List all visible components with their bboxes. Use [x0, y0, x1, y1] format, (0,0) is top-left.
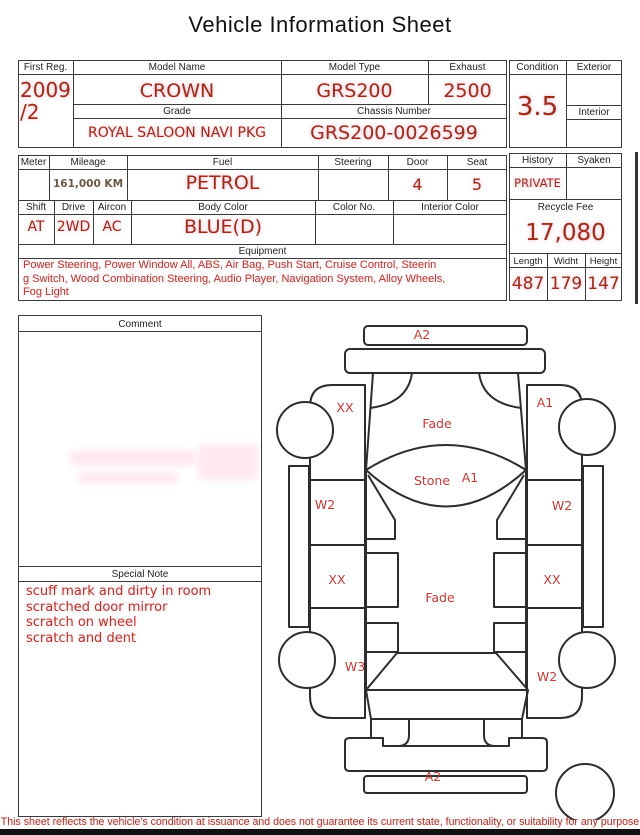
door-value: 4 [388, 175, 447, 194]
first-reg-month: /2 [20, 100, 39, 124]
special-note-line: scuff mark and dirty in room [26, 584, 211, 600]
equipment-line: Fog Light [23, 286, 503, 300]
rear-left-wheel [279, 632, 335, 688]
page-title: Vehicle Information Sheet [0, 12, 640, 38]
right-rear-window-tab [494, 623, 526, 652]
grid-line [18, 581, 262, 582]
interior-label: Interior [566, 106, 622, 119]
vehicle-information-sheet: Vehicle Information Sheet First Reg. Mod… [0, 0, 640, 835]
aircon-value: AC [93, 219, 131, 235]
rear-right-wheel [559, 632, 615, 688]
equipment-value: Power Steering, Power Window All, ABS, A… [23, 259, 503, 300]
scan-bleed-artifact [70, 450, 195, 466]
condition-value: 3.5 [509, 92, 566, 122]
grid-line [509, 74, 622, 75]
model-type-value: GRS200 [281, 80, 428, 102]
drive-value: 2WD [54, 219, 93, 235]
scan-bleed-artifact [78, 472, 178, 484]
rear-bumper [345, 738, 547, 771]
right-rocker-panel [583, 466, 603, 627]
model-type-label: Model Type [281, 61, 428, 74]
steering-label: Steering [318, 156, 388, 169]
special-note-line: scratch on wheel [26, 615, 211, 631]
exhaust-value: 2500 [428, 80, 507, 102]
damage-label-rear-bumper: A2 [425, 769, 442, 784]
grid-line [73, 118, 507, 119]
height-value: 147 [585, 274, 622, 294]
left-front-door-panel [310, 480, 365, 545]
left-front-window-tab [366, 553, 398, 607]
disclaimer-text: This sheet reflects the vehicle's condit… [0, 816, 640, 828]
grade-label: Grade [73, 105, 281, 118]
front-left-wheel [277, 402, 333, 458]
equipment-line: Power Steering, Power Window All, ABS, A… [23, 259, 503, 273]
grid-line [566, 119, 622, 120]
length-label: Length [509, 255, 547, 268]
car-damage-diagram: A2 XX A1 Fade Stone A1 W2 W2 XX XX Fade … [270, 315, 640, 820]
height-label: Height [585, 255, 622, 268]
grade-value: ROYAL SALOON NAVI PKG [73, 125, 281, 141]
rear-bumper-strip [364, 776, 527, 793]
body-color-value: BLUE(D) [131, 216, 315, 238]
exhaust-label: Exhaust [428, 61, 507, 74]
damage-label-hood: Fade [422, 416, 452, 431]
length-value: 487 [509, 274, 547, 294]
interior-color-label: Interior Color [393, 201, 507, 214]
grid-line [509, 167, 622, 168]
damage-label-left-front-door: W2 [315, 497, 335, 512]
fuel-value: PETROL [127, 172, 318, 194]
spare-wheel [556, 764, 614, 820]
damage-label-right-rear-fender: W2 [537, 669, 557, 684]
fuel-label: Fuel [127, 156, 318, 169]
color-no-label: Color No. [315, 201, 393, 214]
condition-label: Condition [509, 61, 566, 74]
equipment-label: Equipment [18, 245, 507, 258]
chassis-number-label: Chassis Number [281, 105, 507, 118]
door-label: Door [388, 156, 447, 169]
aircon-label: Aircon [93, 201, 131, 214]
width-label: Widht [547, 255, 585, 268]
right-front-window-tab [494, 553, 526, 607]
special-note-line: scratch and dent [26, 631, 211, 647]
damage-label-roof: Fade [425, 590, 455, 605]
seat-label: Seat [447, 156, 507, 169]
recycle-fee-label: Recycle Fee [509, 201, 622, 214]
exterior-label: Exterior [566, 61, 622, 74]
left-rocker-panel [289, 466, 309, 627]
equipment-line: g Switch, Wood Combination Steering, Aud… [23, 273, 503, 287]
first-reg-label: First Reg. [18, 61, 73, 74]
first-reg-year: 2009 [20, 78, 71, 102]
meter-label: Meter [18, 156, 49, 169]
trunk-lid [366, 690, 528, 719]
comment-label: Comment [18, 318, 262, 331]
grid-line [18, 74, 507, 75]
seat-value: 5 [447, 175, 507, 194]
front-right-wheel [559, 399, 615, 455]
damage-label-right-front-fender: A1 [537, 395, 554, 410]
front-bumper [345, 349, 545, 373]
damage-label-left-front-fender: XX [336, 400, 354, 415]
body-color-label: Body Color [131, 201, 315, 214]
special-note-value: scuff mark and dirty in room scratched d… [26, 584, 211, 646]
drive-label: Drive [54, 201, 93, 214]
syaken-label: Syaken [566, 154, 622, 167]
width-value: 179 [547, 274, 585, 294]
first-reg-value: 2009 /2 [20, 79, 73, 123]
damage-label-left-rear-door: XX [328, 572, 346, 587]
scan-edge-artifact [635, 152, 638, 304]
grid-line [18, 331, 262, 332]
scan-edge-bottom [0, 829, 640, 835]
chassis-number-value: GRS200-0026599 [281, 122, 507, 144]
special-note-line: scratched door mirror [26, 600, 211, 616]
recycle-fee-value: 17,080 [509, 220, 622, 246]
model-name-value: CROWN [73, 80, 281, 102]
damage-label-right-rear-door: XX [543, 572, 561, 587]
shift-value: AT [18, 219, 54, 235]
damage-label-right-front-door: W2 [552, 498, 572, 513]
damage-label-windshield-grade: A1 [462, 470, 479, 485]
rear-window [366, 653, 528, 690]
history-label: History [509, 154, 566, 167]
damage-label-left-rear-fender: W3 [345, 659, 365, 674]
damage-label-windshield-stone: Stone [414, 473, 450, 488]
grid-line [18, 169, 507, 170]
left-rear-window-tab [366, 623, 398, 652]
front-bumper-strip [364, 326, 527, 345]
special-note-label: Special Note [18, 568, 262, 581]
mileage-value: 161,000 KM [49, 178, 127, 190]
history-value: PRIVATE [509, 176, 566, 190]
mileage-label: Mileage [49, 156, 127, 169]
damage-label-front-bumper: A2 [414, 327, 431, 342]
model-name-label: Model Name [73, 61, 281, 74]
shift-label: Shift [18, 201, 54, 214]
scan-bleed-artifact [198, 444, 258, 480]
